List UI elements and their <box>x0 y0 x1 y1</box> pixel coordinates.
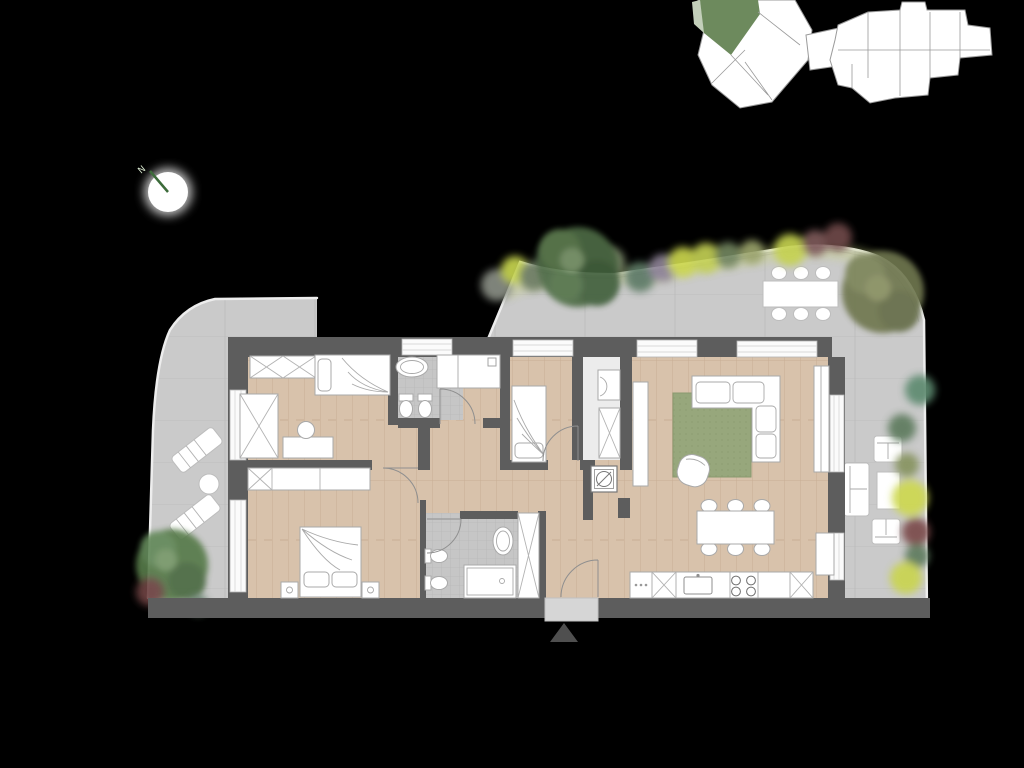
toilet-tank <box>399 394 413 401</box>
pillow <box>318 359 331 391</box>
dining-set <box>697 500 774 556</box>
tree-top-right-olive <box>842 251 924 333</box>
outdoor-chair <box>816 308 831 321</box>
wall-living-left <box>620 357 632 470</box>
window-left-2 <box>230 500 246 592</box>
desk-chair <box>298 422 315 439</box>
window-top-4 <box>737 341 817 357</box>
tv-cabinet <box>633 382 648 486</box>
nightstand <box>362 582 379 598</box>
bidet <box>431 577 448 590</box>
entrance-step <box>545 598 598 621</box>
terrace-door <box>816 533 834 575</box>
shower <box>464 565 516 598</box>
outdoor-dining-set <box>763 267 838 321</box>
outdoor-sofa <box>844 463 869 516</box>
wall-pier-corridor <box>483 418 500 428</box>
outdoor-chair <box>772 267 787 280</box>
kitchen-counter <box>630 572 813 598</box>
toilet <box>400 401 413 418</box>
wall-bedroom2-left <box>500 357 510 470</box>
counter-knobs <box>645 584 648 587</box>
desk <box>283 437 333 458</box>
outdoor-chair <box>794 308 809 321</box>
wall-pier-bedroom3 <box>418 428 430 470</box>
outdoor-chair <box>772 308 787 321</box>
outdoor-dining-table <box>763 281 838 307</box>
apartment <box>148 337 930 618</box>
pillow <box>332 572 357 587</box>
counter-knobs <box>635 584 638 587</box>
wardrobe <box>248 468 370 490</box>
wardrobe <box>250 356 316 378</box>
wall-bathroom1-bottom <box>398 418 440 428</box>
kitchen-faucet <box>696 574 699 577</box>
floor-plan-svg: N <box>0 0 1024 768</box>
dining-table <box>697 511 774 544</box>
wall-bottom <box>148 598 930 618</box>
window-top-1 <box>402 339 452 355</box>
outdoor-chair <box>816 267 831 280</box>
terrace-side-table <box>199 474 219 494</box>
pillow <box>304 572 329 587</box>
shelving <box>814 366 829 472</box>
nightstand <box>281 582 298 598</box>
outdoor-chair <box>794 267 809 280</box>
window-top-3 <box>637 340 697 357</box>
window-right-1 <box>830 395 844 472</box>
shower-counter <box>437 355 500 388</box>
wall-bathroom2-top <box>460 511 518 519</box>
counter-knobs <box>640 584 643 587</box>
bidet <box>419 401 432 418</box>
floor-plan-canvas: N <box>0 0 1024 768</box>
window-top-2 <box>513 340 573 356</box>
wall-pier-kitchen <box>618 498 630 518</box>
bidet-tank <box>418 394 432 401</box>
